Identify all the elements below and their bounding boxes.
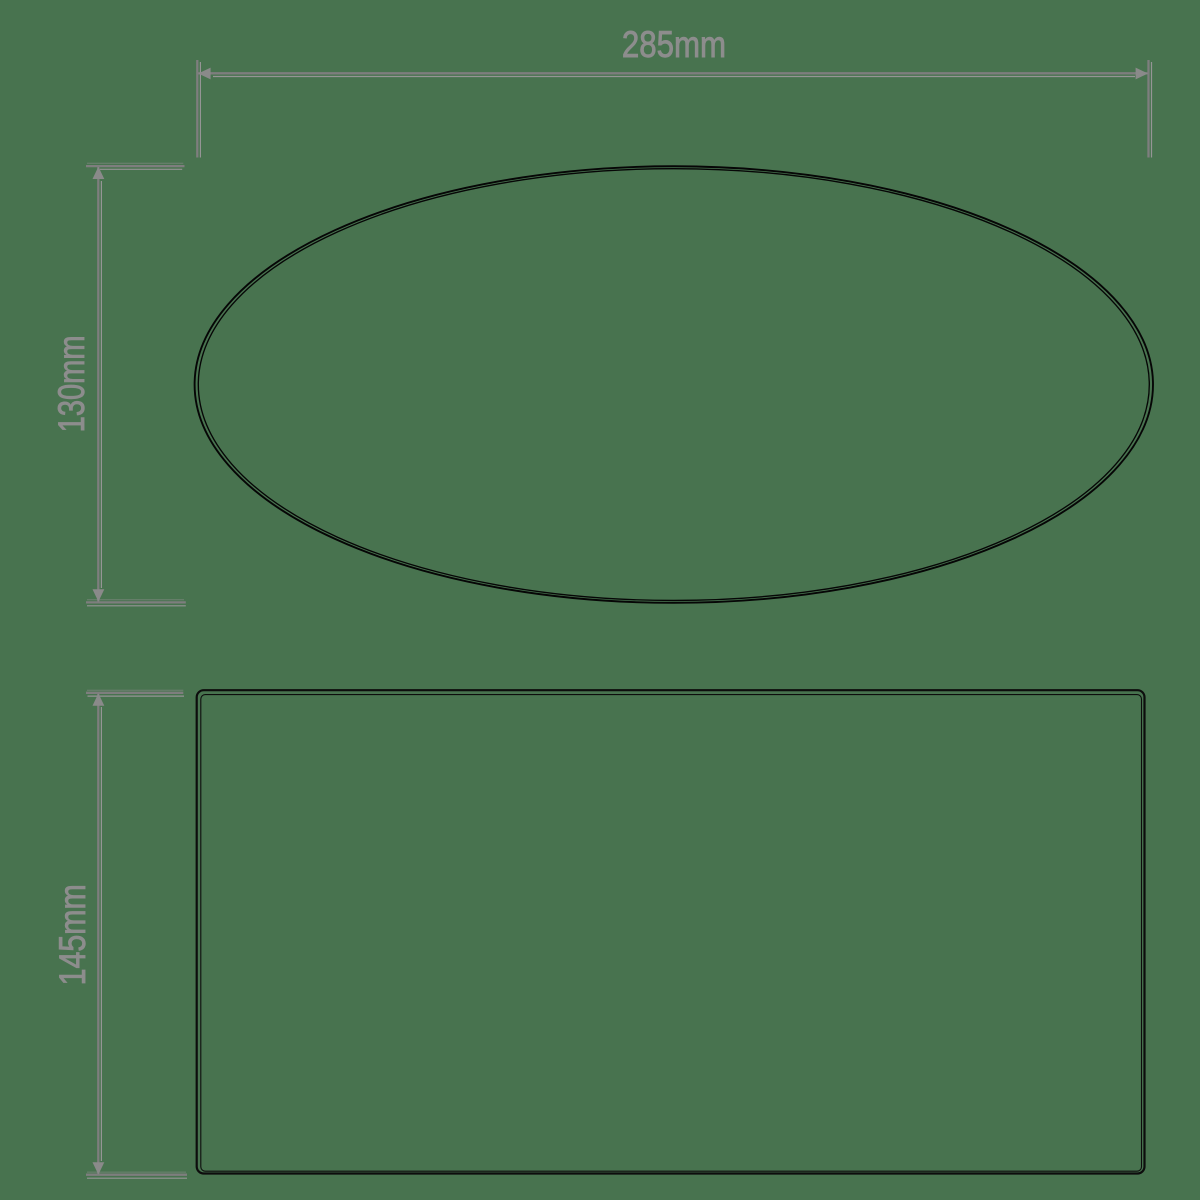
- svg-text:145mm: 145mm: [52, 884, 94, 985]
- svg-text:130mm: 130mm: [52, 335, 93, 432]
- svg-text:285mm: 285mm: [622, 24, 726, 65]
